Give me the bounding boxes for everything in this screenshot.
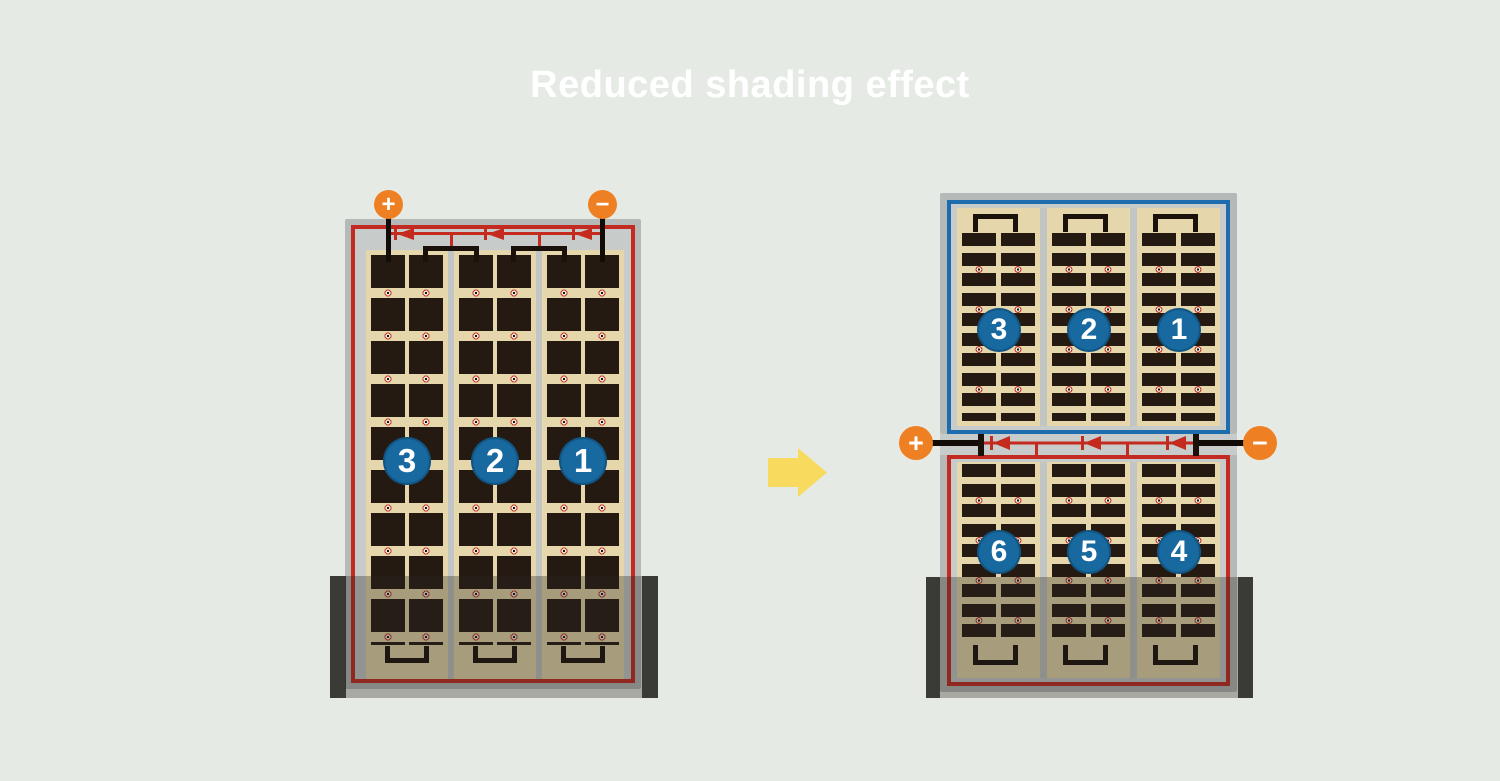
string-number-badge: 4	[1157, 530, 1201, 574]
diode-icon	[990, 436, 1010, 450]
negative-terminal: −	[1243, 426, 1277, 460]
positive-terminal: +	[374, 190, 403, 219]
shade-overlay	[926, 577, 1253, 698]
string-separator	[1040, 208, 1047, 426]
arrow-right-icon	[768, 448, 828, 498]
diode-icon	[1166, 436, 1186, 450]
bypass-diode-chain-icon	[351, 228, 635, 252]
string-number-badge: 6	[977, 530, 1021, 574]
plus-icon: +	[381, 191, 395, 219]
diode-icon	[484, 228, 504, 240]
string-number-badge: 2	[471, 437, 519, 485]
busbar-bridge	[1063, 214, 1108, 232]
string-separator	[1130, 208, 1137, 426]
diode-icon	[1081, 436, 1101, 450]
minus-icon: −	[1252, 428, 1268, 459]
string-number-badge: 1	[559, 437, 607, 485]
busbar-bridge	[1153, 214, 1198, 232]
string-number-badge: 5	[1067, 530, 1111, 574]
shade-overlay	[330, 576, 658, 698]
string-number-badge: 3	[383, 437, 431, 485]
plus-icon: +	[908, 428, 924, 459]
terminal-lead	[386, 216, 391, 262]
canvas: Reduced shading effect + − 3 2 1	[0, 0, 1500, 781]
page-title: Reduced shading effect	[0, 64, 1500, 107]
diode-icon	[572, 228, 592, 240]
diode-icon	[394, 228, 414, 240]
positive-terminal: +	[899, 426, 933, 460]
string-number-badge: 1	[1157, 308, 1201, 352]
bypass-diode-chain-icon	[940, 434, 1237, 456]
string-number-badge: 3	[977, 308, 1021, 352]
terminal-lead	[600, 216, 605, 262]
minus-icon: −	[595, 191, 609, 219]
string-number-badge: 2	[1067, 308, 1111, 352]
busbar-bridge	[973, 214, 1018, 232]
negative-terminal: −	[588, 190, 617, 219]
